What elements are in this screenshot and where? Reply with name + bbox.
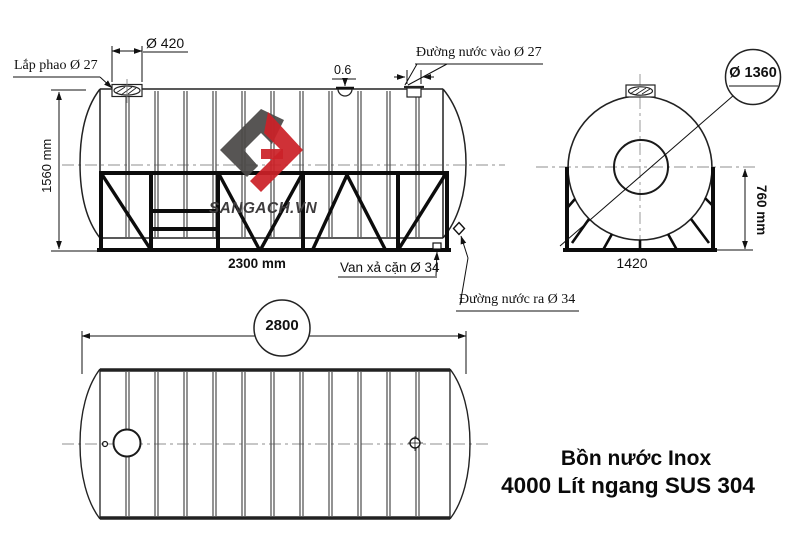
manhole-fitting: [112, 79, 142, 103]
dim-wall-thickness: 0.6: [334, 64, 351, 77]
top-view-dimensions: [82, 300, 466, 374]
outlet-fitting: [454, 223, 465, 235]
title-line-2: 4000 Lít ngang SUS 304: [501, 474, 755, 498]
wall-thickness-detail: [336, 88, 354, 96]
dim-overall-length: 2800: [265, 318, 298, 334]
saddle-ribs: [568, 198, 713, 250]
centerlines: [62, 74, 758, 444]
logo-g-bar: [261, 149, 283, 159]
label-water-outlet: Đường nước ra Ø 34: [459, 293, 575, 308]
dim-stand-length: 2300 mm: [228, 257, 286, 271]
dim-tank-diameter: Ø 1360: [729, 66, 777, 81]
dim-stand-width: 1420: [616, 256, 647, 271]
brand-name: SANGACH.VN: [209, 201, 317, 217]
label-water-inlet: Đường nước vào Ø 27: [416, 46, 542, 61]
side-view-dimensions: [13, 46, 579, 311]
drawing-sheet: Lắp phao Ø 27 Ø 420 0.6 Đường nước vào Ø…: [0, 0, 800, 538]
dim-manhole-diameter: Ø 420: [146, 36, 184, 51]
inlet-fitting: [404, 87, 424, 97]
label-float-valve: Lắp phao Ø 27: [14, 59, 98, 74]
top-view-manhole: [114, 430, 141, 457]
brand-logo: [220, 109, 303, 192]
title-line-1: Bồn nước Inox: [561, 448, 711, 470]
label-drain-valve: Van xả cặn Ø 34: [340, 261, 440, 275]
dim-overall-height: 1560 mm: [40, 120, 54, 212]
end-view-fitting: [626, 85, 655, 97]
drain-fitting: [433, 243, 441, 249]
dim-stand-height: 760 mm: [754, 178, 768, 242]
